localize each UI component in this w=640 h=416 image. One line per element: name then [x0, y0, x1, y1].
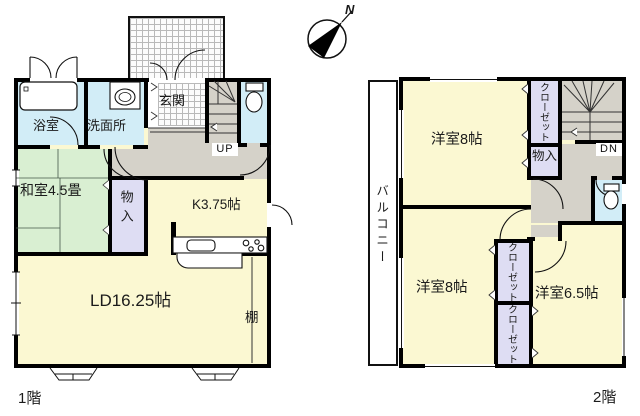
stairs-1f-floor: [209, 80, 237, 143]
wall: [558, 237, 562, 241]
wall: [260, 143, 271, 147]
wall: [78, 145, 100, 149]
wall: [237, 143, 247, 147]
bedroom-north-balcony-window: [399, 110, 404, 178]
floor2-label: 2階: [593, 390, 616, 406]
wall: [144, 176, 244, 180]
wall: [612, 176, 626, 180]
wall: [240, 250, 271, 256]
wall: [399, 205, 531, 209]
stairs-2f-floor: [562, 81, 622, 140]
room-label-bedroom-east: 洋室6.5帖: [535, 287, 599, 302]
room-bath: [16, 80, 84, 145]
porch-tiles: [128, 16, 225, 79]
room-label-kitchen: K3.75帖: [192, 198, 241, 212]
stairs-dn-label: DN: [596, 143, 622, 156]
storage-1f-label: 物入: [119, 190, 133, 246]
wall: [14, 252, 148, 256]
floor1-label: 1階: [18, 391, 41, 407]
room-washroom: [88, 80, 144, 145]
japanese-room-window: [13, 170, 19, 186]
wall: [171, 222, 176, 255]
bath-window-opening: [30, 78, 77, 83]
hall-2f-lower: [531, 225, 558, 237]
closet-mid-label: クローゼット: [505, 242, 516, 300]
wall: [133, 145, 148, 149]
compass-north-label: N: [345, 3, 354, 17]
wall: [527, 176, 562, 180]
hall-2f: [531, 180, 591, 223]
stairs-up-label: UP: [212, 143, 238, 156]
hall-1f-corner: [112, 149, 148, 179]
storage-2f-label: 物入: [532, 150, 557, 163]
wall: [558, 77, 562, 176]
wall: [144, 78, 148, 128]
bedroom-west-south-window: [425, 364, 495, 369]
bedroom-west-balcony-window: [399, 258, 404, 348]
bedroom-north-window: [430, 77, 497, 82]
wall: [591, 176, 595, 225]
bedroom-east-window: [622, 298, 627, 356]
wall: [108, 176, 148, 180]
wall: [84, 78, 88, 145]
living-window-west: [13, 272, 19, 335]
room-toilet-2f: [595, 180, 622, 221]
room-label-bedroom-north: 洋室8帖: [431, 133, 483, 148]
wall: [558, 140, 562, 144]
shelf-label: 棚: [245, 311, 259, 325]
toilet-2f-window: [622, 184, 627, 204]
wall: [527, 77, 531, 179]
wall: [237, 78, 241, 143]
wall: [108, 149, 112, 256]
room-label-entrance: 玄関: [159, 94, 185, 108]
room-label-japanese: 和室4.5畳: [20, 183, 81, 198]
wall: [527, 143, 562, 147]
entrance-door-opening: [149, 78, 205, 83]
room-toilet-1f: [241, 80, 267, 143]
balcony-label: バルコニー: [374, 184, 387, 284]
wall: [529, 239, 533, 364]
room-label-living: LD16.25帖: [90, 292, 171, 310]
closet-south-label: クローゼット: [505, 304, 516, 362]
closet-north-label: クローゼット: [537, 82, 548, 142]
kitchen-door-opening: [267, 203, 272, 227]
wall: [14, 145, 50, 149]
wall: [144, 176, 148, 256]
wall: [205, 78, 209, 143]
room-label-bedroom-west: 洋室8帖: [416, 281, 468, 296]
room-japanese: [16, 149, 108, 252]
wall: [558, 221, 626, 225]
room-label-bath: 浴室: [33, 119, 59, 133]
compass-icon: [308, 11, 352, 58]
wall: [14, 364, 271, 368]
floor-plan: N 浴室 洗面所 玄関 UP 和室4.5畳 物入 K3.75帖 LD16.25帖…: [0, 0, 640, 416]
room-label-washroom: 洗面所: [87, 119, 126, 133]
